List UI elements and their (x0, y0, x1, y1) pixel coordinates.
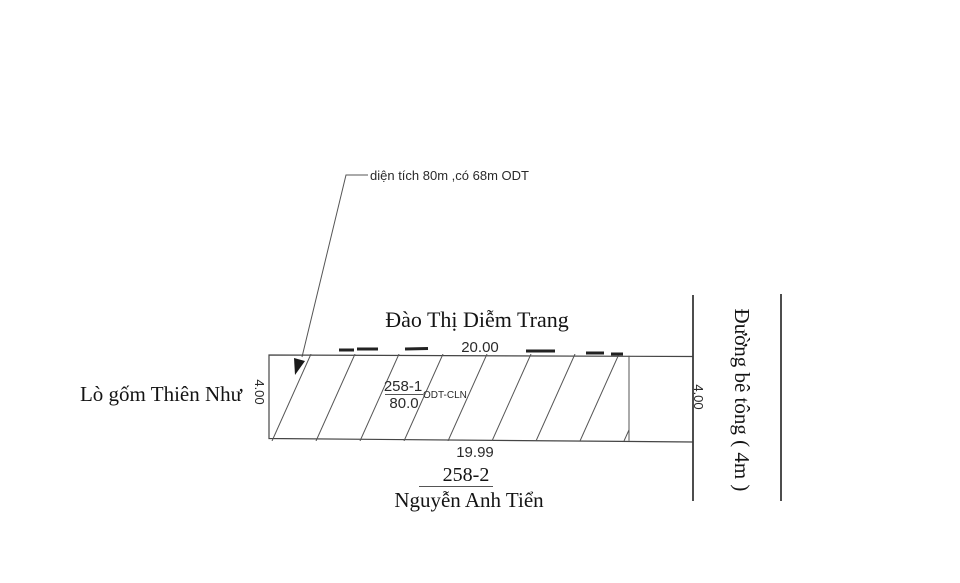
adjacent-left-name: Lò gốm Thiên Như (80, 382, 243, 406)
road-name: Đường bê tông ( 4m ) (730, 309, 754, 492)
adjacent-bottom-parcel: 258-2 (443, 464, 490, 486)
leader-line (302, 175, 368, 357)
parcel-land-use: ODT-CLN (423, 390, 467, 401)
parcel-number: 258-1 (384, 378, 422, 395)
adjacent-bottom-name: Nguyễn Anh Tiển (394, 488, 544, 512)
dimension-right: 4.00 (691, 384, 706, 409)
cadastral-drawing: diện tích 80m ,có 68m ODT (0, 0, 960, 583)
leader-arrowhead (294, 358, 305, 375)
parcel-area: 80.0 (389, 395, 418, 412)
area-annotation: diện tích 80m ,có 68m ODT (370, 168, 529, 183)
dimension-bottom: 19.99 (456, 444, 494, 461)
drawing-svg: diện tích 80m ,có 68m ODT (0, 0, 960, 583)
adjacent-top-name: Đào Thị Diễm Trang (385, 307, 569, 332)
dimension-left: 4.00 (252, 379, 267, 404)
dimension-top: 20.00 (461, 339, 499, 356)
